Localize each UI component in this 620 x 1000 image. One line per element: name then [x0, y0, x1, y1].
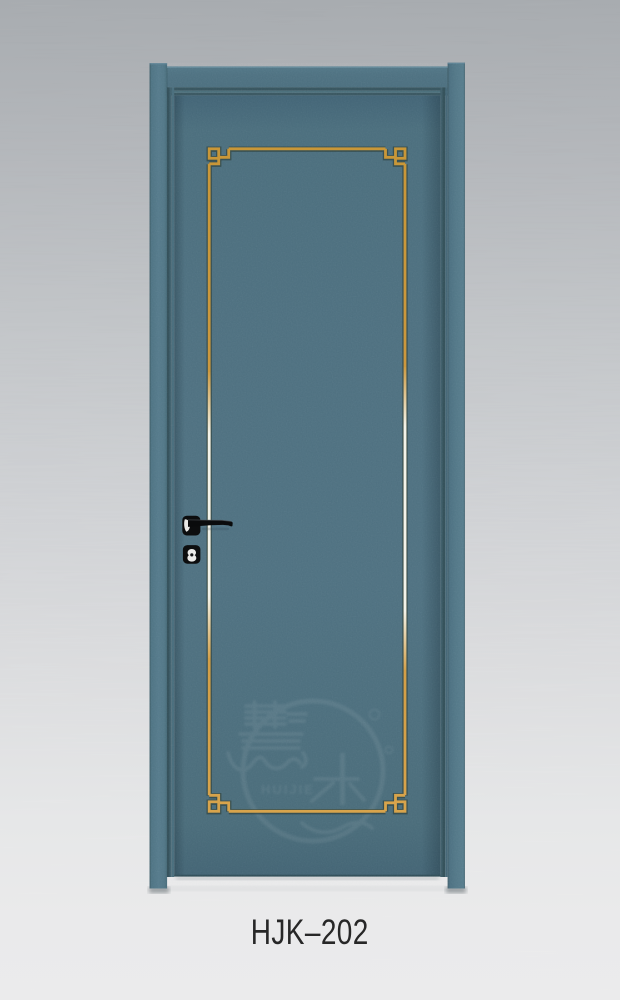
svg-text:HUIJIE: HUIJIE: [261, 782, 315, 797]
